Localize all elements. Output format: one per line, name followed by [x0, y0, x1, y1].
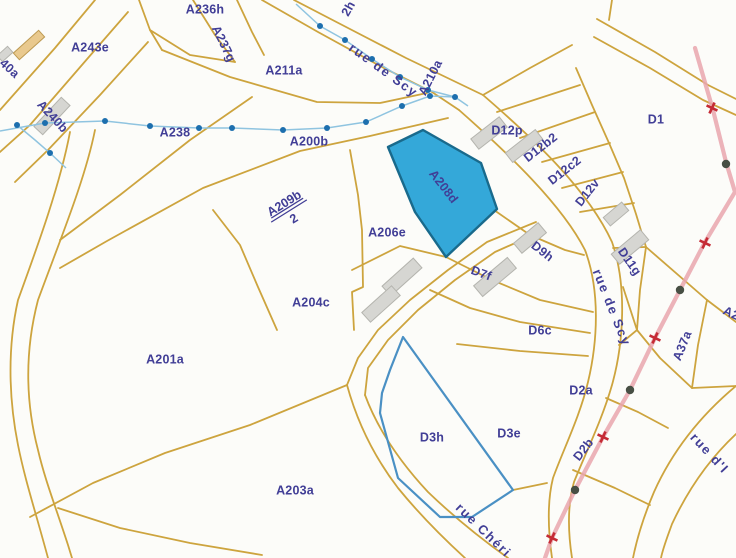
stream-node	[342, 37, 348, 43]
parcel-boundary-line	[237, 0, 264, 55]
parcel-label-a37a: A37a	[670, 328, 695, 362]
parcel-label-a243e: A243e	[71, 40, 109, 54]
parcel-boundary-line	[58, 508, 262, 555]
parcel-boundary-line	[139, 0, 162, 50]
building-footprint	[13, 30, 44, 59]
stream-node	[324, 125, 330, 131]
parcel-boundary-line	[513, 483, 547, 490]
svg-text:2: 2	[287, 211, 300, 227]
parcel-boundary-line	[430, 290, 590, 333]
cadastral-map-canvas[interactable]: A236h2hA243eA237g40aA211aA210aA240bA238A…	[0, 0, 736, 558]
parcel-boundary-line	[28, 130, 95, 558]
boundary-dot-marker	[626, 386, 634, 394]
parcel-label-a2: A2	[721, 304, 736, 324]
parcel-label-d3h: D3h	[420, 430, 444, 444]
parcel-label-d12v: D12v	[572, 176, 602, 209]
parcel-boundary-line	[60, 118, 448, 268]
stream-node	[363, 119, 369, 125]
stream-node	[147, 123, 153, 129]
parcel-boundary-line	[0, 0, 95, 110]
stream-node	[317, 23, 323, 29]
parcel-label-d2a: D2a	[569, 383, 593, 397]
parcel-boundary-line	[11, 132, 71, 558]
parcel-boundary-line	[497, 85, 580, 112]
parcel-boundary-line	[609, 0, 612, 20]
building-footprint	[362, 286, 400, 322]
stream-node	[452, 94, 458, 100]
stream-node	[14, 122, 20, 128]
parcel-boundary-line	[60, 97, 252, 240]
boundary-dot-marker	[676, 286, 684, 294]
stream-node	[47, 150, 53, 156]
parcel-boundary-line	[457, 344, 588, 356]
parcel-label-2h: 2h	[339, 0, 359, 19]
stream-node	[196, 125, 202, 131]
parcel-boundary-line	[15, 42, 148, 182]
parcel-label-a200b: A200b	[290, 134, 329, 148]
boundary-dot-marker	[722, 160, 730, 168]
parcel-boundary-line	[347, 385, 465, 558]
parcel-boundary-line	[213, 210, 277, 330]
parcel-label-a210a: A210a	[416, 57, 446, 98]
parcel-label-d3e: D3e	[497, 426, 521, 440]
boundary-dot-marker	[571, 486, 579, 494]
parcel-boundary-line	[692, 300, 707, 388]
parcel-boundary-line	[637, 247, 646, 330]
parcel-label-d6c: D6c	[528, 323, 552, 337]
parcel-label-a238: A238	[160, 125, 191, 139]
stream-node	[399, 103, 405, 109]
parcel-label-d1: D1	[648, 112, 664, 126]
parcel-label-d12p: D12p	[491, 123, 523, 137]
cadastral-map[interactable]: A236h2hA243eA237g40aA211aA210aA240bA238A…	[0, 0, 736, 558]
parcel-boundary-line	[352, 246, 446, 270]
parcel-boundary-line	[365, 232, 540, 395]
parcel-boundary-line	[350, 150, 363, 330]
parcel-label-a209b-2: A209b2	[263, 186, 316, 235]
street-label-rue-d-i: rue d'I	[687, 430, 732, 477]
parcel-label-a211a: A211a	[265, 63, 303, 77]
stream-node	[229, 125, 235, 131]
parcel-label-a204c: A204c	[292, 295, 330, 309]
street-label-rue-de-scy: rue de Scy	[346, 40, 421, 100]
parcel-label-a203a: A203a	[276, 483, 315, 497]
parcel-label-a236h: A236h	[186, 2, 225, 16]
parcel-boundary-line	[446, 257, 593, 312]
parcel-boundary-line	[661, 434, 736, 558]
boundary-cross-marker	[647, 330, 663, 346]
parcel-boundary-line	[597, 19, 736, 99]
parcel-boundary-line	[483, 45, 572, 95]
parcel-boundary-line	[692, 386, 736, 388]
stream-node	[102, 118, 108, 124]
stream-node	[280, 127, 286, 133]
parcel-label-a206e: A206e	[368, 225, 406, 239]
parcel-label-a201a: A201a	[146, 352, 185, 366]
